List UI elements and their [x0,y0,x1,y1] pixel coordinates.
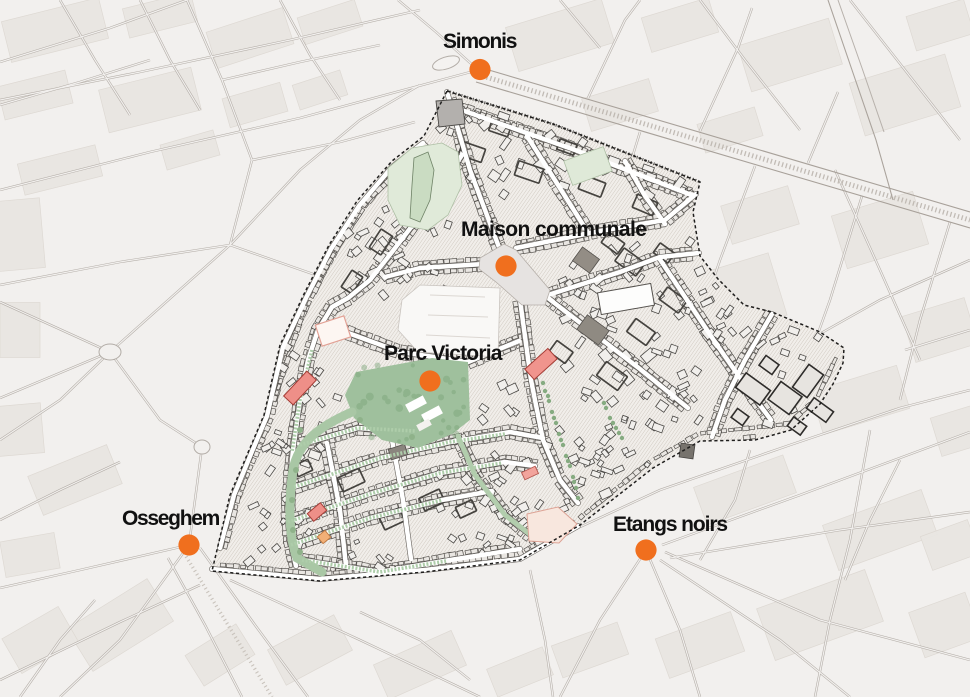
svg-text:Parc Victoria: Parc Victoria [384,342,503,365]
svg-text:Osseghem: Osseghem [122,507,220,530]
svg-text:Etangs noirs: Etangs noirs [613,513,727,536]
svg-text:Simonis: Simonis [443,30,517,53]
svg-text:Maison communale: Maison communale [461,218,646,241]
